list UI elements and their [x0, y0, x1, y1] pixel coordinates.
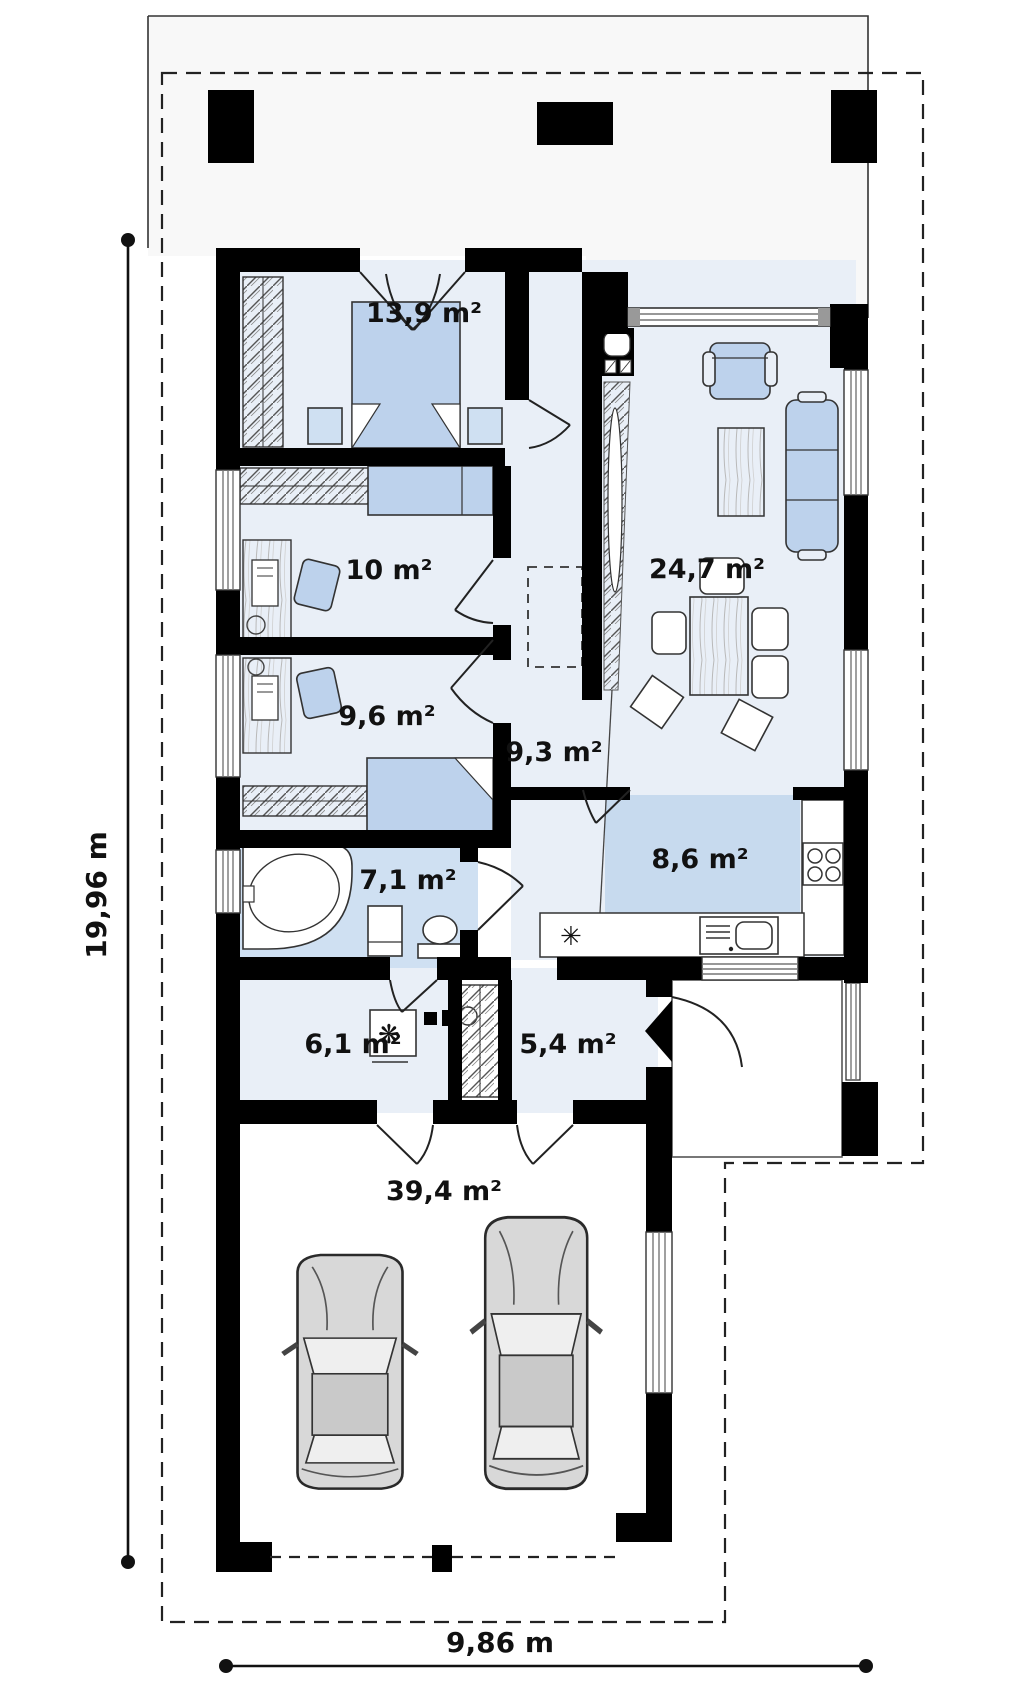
coffee-table: [718, 428, 764, 516]
dining-table: [690, 597, 748, 695]
dimension-bottom: 9,86 m: [219, 1626, 873, 1673]
dimension-left-label: 19,96 m: [80, 831, 113, 959]
entrance-porch: [672, 980, 878, 1157]
car-icon: [283, 1255, 417, 1489]
window: [216, 470, 240, 590]
kitchen-sink: [700, 917, 778, 954]
window: [844, 650, 868, 770]
washing-machine: [368, 906, 402, 956]
bed-single: [368, 466, 493, 515]
entry-closet: [460, 985, 500, 1097]
room-label-utility: 6,1 m²: [304, 1029, 401, 1060]
window: [646, 1232, 672, 1393]
sliding-terrace-door: [628, 308, 830, 326]
nightstand: [308, 408, 342, 444]
nightstand: [468, 408, 502, 444]
wood-stove: [600, 328, 634, 376]
room-label-kitchen: 8,6 m²: [651, 844, 748, 875]
dining-chair: [652, 612, 686, 654]
porch-window: [846, 983, 860, 1080]
window: [844, 370, 868, 495]
room-label-room-9-6: 9,6 m²: [338, 701, 435, 732]
window: [702, 957, 798, 980]
room-label-bedroom: 13,9 m²: [366, 298, 482, 329]
stove-hob: [803, 843, 843, 885]
car-icon: [471, 1217, 602, 1488]
dining-chair: [752, 608, 788, 650]
window: [216, 655, 240, 777]
floor-plan-page: ✳ ❋: [0, 0, 1024, 1702]
window: [216, 850, 240, 913]
room-label-bathroom: 7,1 m²: [359, 865, 456, 896]
dimension-left: 19,96 m: [80, 233, 135, 1569]
dining-chair: [752, 656, 788, 698]
room-label-garage: 39,4 m²: [386, 1176, 502, 1207]
room-label-living: 24,7 m²: [649, 554, 765, 585]
armchair: [703, 343, 777, 399]
dimension-bottom-label: 9,86 m: [446, 1626, 554, 1659]
room-label-hallway: 9,3 m²: [505, 737, 602, 768]
room-label-room-10: 10 m²: [346, 555, 433, 586]
floor-plan-drawing: ✳ ❋: [0, 0, 1024, 1702]
sofa: [786, 392, 838, 560]
hob-symbol: ✳: [560, 922, 582, 952]
room-label-entrance: 5,4 m²: [519, 1029, 616, 1060]
